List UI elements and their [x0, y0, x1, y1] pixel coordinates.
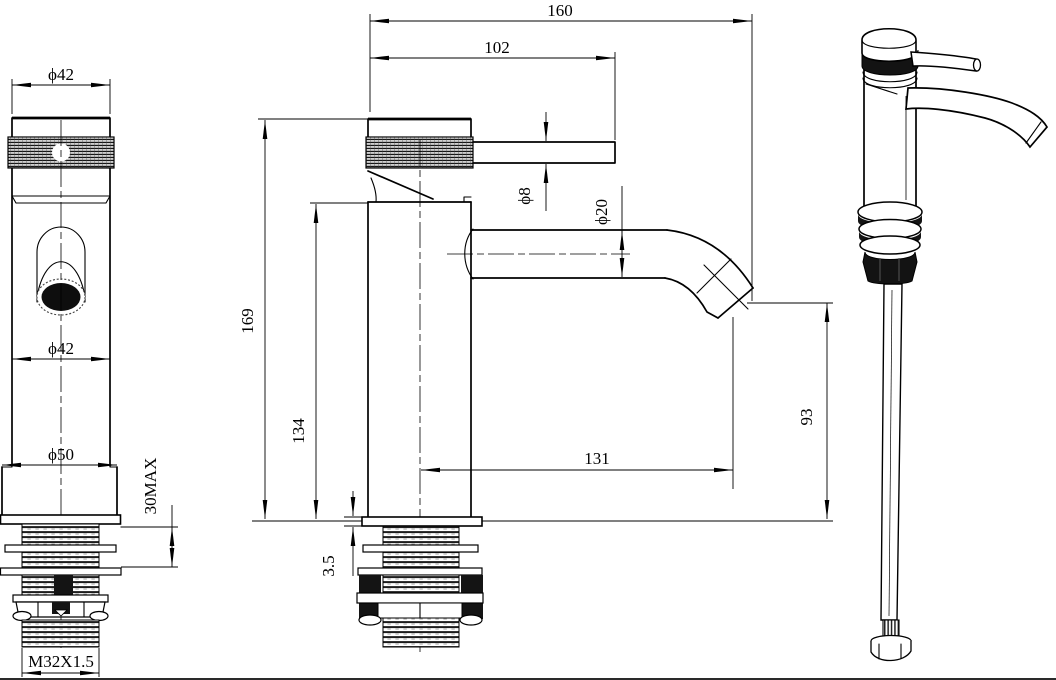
front-locknut-flange — [13, 595, 108, 602]
dim-side-plate-thickness: 3.5 — [319, 555, 338, 576]
front-thread-tail — [22, 620, 99, 647]
side-base-plate — [362, 517, 482, 526]
side-locknut-flange — [357, 593, 483, 603]
dim-side-total-height: 169 — [238, 308, 257, 334]
faucet-technical-drawing: ϕ42 ϕ42 ϕ50 30MAX — [0, 0, 1056, 680]
side-washer-1 — [363, 545, 478, 552]
dim-front-thread-spec: M32X1.5 — [28, 652, 94, 671]
dim-side-handle-reach: 102 — [484, 38, 510, 57]
side-view: 160 102 169 134 ϕ8 — [238, 1, 833, 652]
dim-side-spout-reach: 131 — [584, 449, 610, 468]
dim-side-spout-height: 134 — [289, 418, 308, 444]
perspective-view — [858, 29, 1047, 661]
persp-base-ring-3 — [860, 236, 920, 254]
side-knurled-ring — [366, 137, 473, 168]
dim-front-max-thickness: 30MAX — [141, 458, 160, 515]
side-lever — [473, 142, 615, 163]
dim-front-base-diameter: ϕ50 — [48, 445, 74, 464]
drawing-svg: ϕ42 ϕ42 ϕ50 30MAX — [0, 0, 1056, 680]
dim-side-spout-diameter: ϕ20 — [592, 199, 611, 225]
front-thread-shank — [22, 524, 99, 545]
front-washer-1 — [5, 545, 116, 552]
persp-hose-nut — [871, 640, 911, 661]
front-gasket — [54, 575, 73, 597]
dim-side-outlet-height: 93 — [797, 409, 816, 426]
dim-side-total-reach: 160 — [547, 1, 573, 20]
persp-cap — [862, 29, 916, 62]
dim-front-cap-diameter: ϕ42 — [48, 65, 74, 84]
dim-front-spout-diameter: ϕ42 — [48, 339, 74, 358]
persp-lever — [911, 52, 976, 71]
persp-spout — [906, 88, 1047, 147]
front-base-plate — [1, 515, 121, 524]
side-thread-tail — [383, 618, 459, 647]
persp-locknut — [863, 252, 917, 284]
side-thread-shank — [383, 526, 459, 545]
persp-hose-collar — [883, 620, 899, 636]
front-view: ϕ42 ϕ42 ϕ50 30MAX — [1, 65, 179, 677]
side-washer-2 — [358, 568, 482, 575]
front-washer-2 — [1, 568, 122, 575]
dim-side-handle-diameter: ϕ8 — [515, 187, 534, 204]
